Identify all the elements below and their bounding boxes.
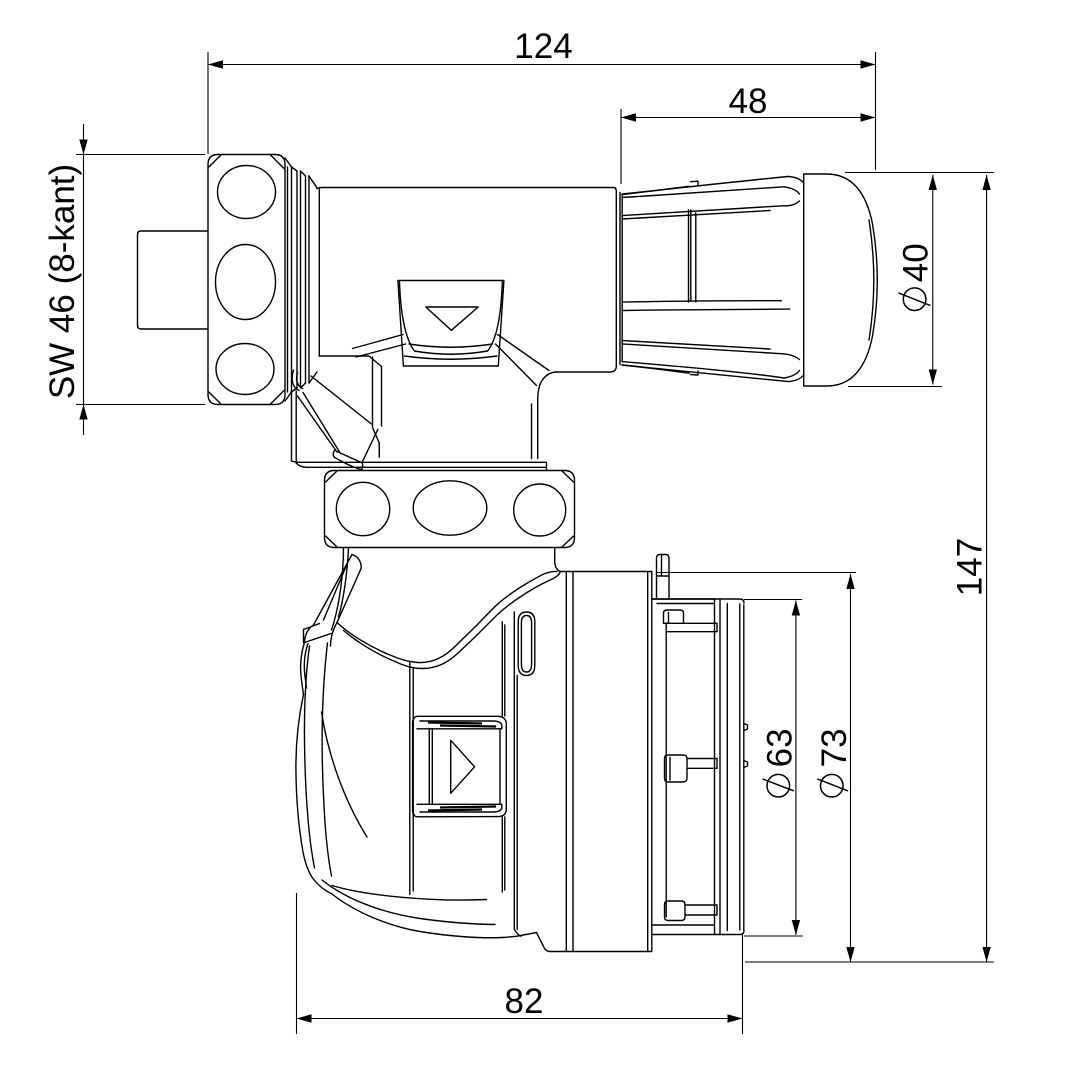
svg-text:SW 46 (8-kant): SW 46 (8-kant) [43, 164, 82, 399]
svg-text:73: 73 [815, 728, 854, 767]
svg-text:63: 63 [761, 728, 800, 767]
svg-text:40: 40 [897, 243, 936, 282]
svg-text:147: 147 [951, 538, 990, 596]
svg-text:124: 124 [514, 27, 572, 66]
svg-text:48: 48 [729, 82, 768, 121]
svg-text:82: 82 [505, 982, 544, 1021]
